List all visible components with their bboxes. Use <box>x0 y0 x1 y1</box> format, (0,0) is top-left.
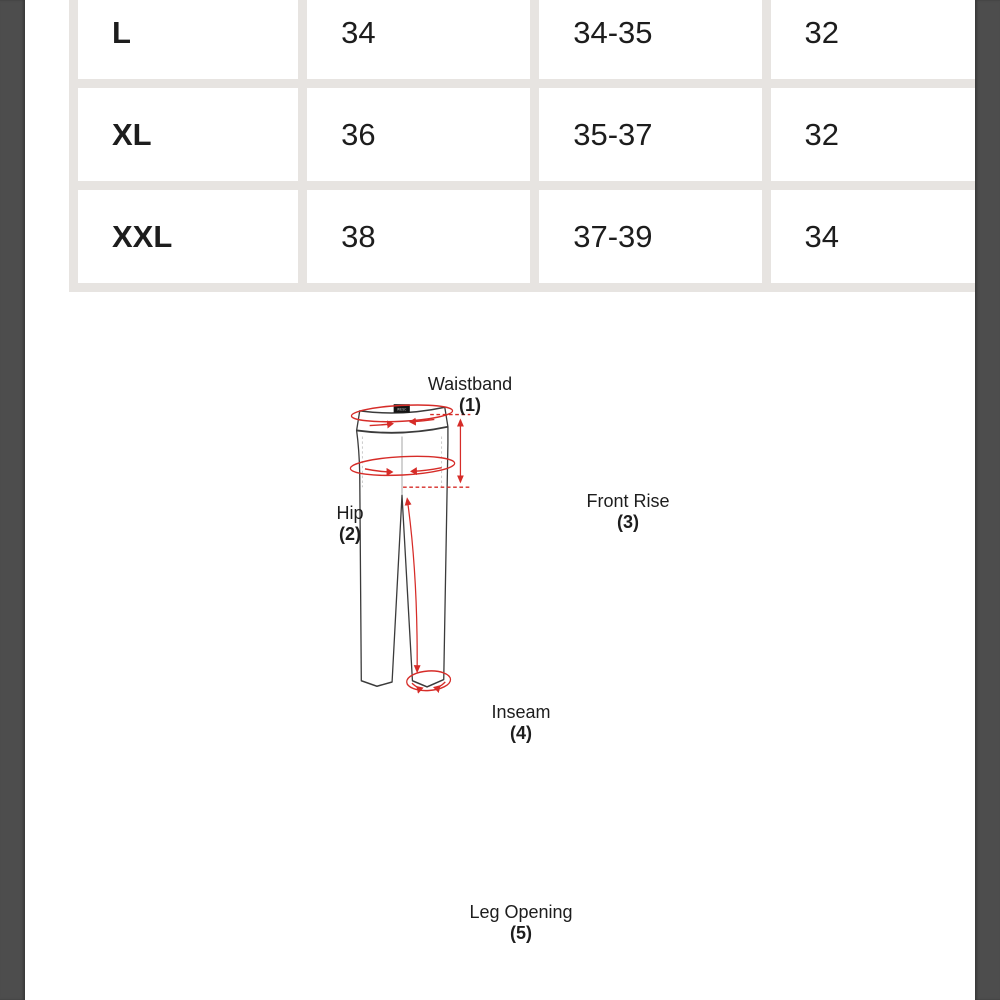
value-cell: 32 <box>771 0 991 79</box>
leg-opening-label: Leg Opening (5) <box>469 902 572 944</box>
brand-tag-text: WESC <box>397 407 407 411</box>
hip-arrow-left <box>365 469 392 472</box>
value-cell: 35-37 <box>539 88 761 181</box>
hip-label: Hip (2) <box>336 503 363 545</box>
size-cell: L <box>78 0 298 79</box>
value-cell: 34-35 <box>539 0 761 79</box>
inseam-arrow <box>407 499 417 672</box>
value-cell: 32 <box>771 88 991 181</box>
waistband-label: Waistband (1) <box>428 374 512 416</box>
value-cell: 34 <box>771 190 991 283</box>
front-rise-label-number: (3) <box>586 512 669 533</box>
letterbox-left-bar <box>0 0 25 1000</box>
front-rise-label: Front Rise (3) <box>586 491 669 533</box>
size-cell: XL <box>78 88 298 181</box>
value-cell: 34 <box>307 0 530 79</box>
waistband-seam <box>357 427 448 433</box>
table-row: XL 36 35-37 32 <box>78 88 991 181</box>
leg-opening-label-number: (5) <box>469 923 572 944</box>
waistband-arrow-left <box>370 424 393 426</box>
table-row: XXL 38 37-39 34 <box>78 190 991 283</box>
size-cell: XXL <box>78 190 298 283</box>
pants-measurement-diagram: WESC <box>330 370 690 950</box>
inseam-label: Inseam (4) <box>491 702 550 744</box>
inseam-label-number: (4) <box>491 723 550 744</box>
value-cell: 37-39 <box>539 190 761 283</box>
leg-opening-label-name: Leg Opening <box>469 902 572 923</box>
waistband-label-number: (1) <box>428 395 512 416</box>
size-chart-table: L 34 34-35 32 XL 36 35-37 32 XXL 38 37-3… <box>69 0 1000 292</box>
letterbox-right-bar <box>975 0 1000 1000</box>
hip-label-name: Hip <box>336 503 363 524</box>
value-cell: 38 <box>307 190 530 283</box>
table-row: L 34 34-35 32 <box>78 0 991 79</box>
page-background: L 34 34-35 32 XL 36 35-37 32 XXL 38 37-3… <box>0 0 1000 1000</box>
hip-label-number: (2) <box>336 524 363 545</box>
waistband-label-name: Waistband <box>428 374 512 395</box>
inseam-label-name: Inseam <box>491 702 550 723</box>
value-cell: 36 <box>307 88 530 181</box>
front-rise-label-name: Front Rise <box>586 491 669 512</box>
hip-measure-ellipse <box>350 454 455 478</box>
